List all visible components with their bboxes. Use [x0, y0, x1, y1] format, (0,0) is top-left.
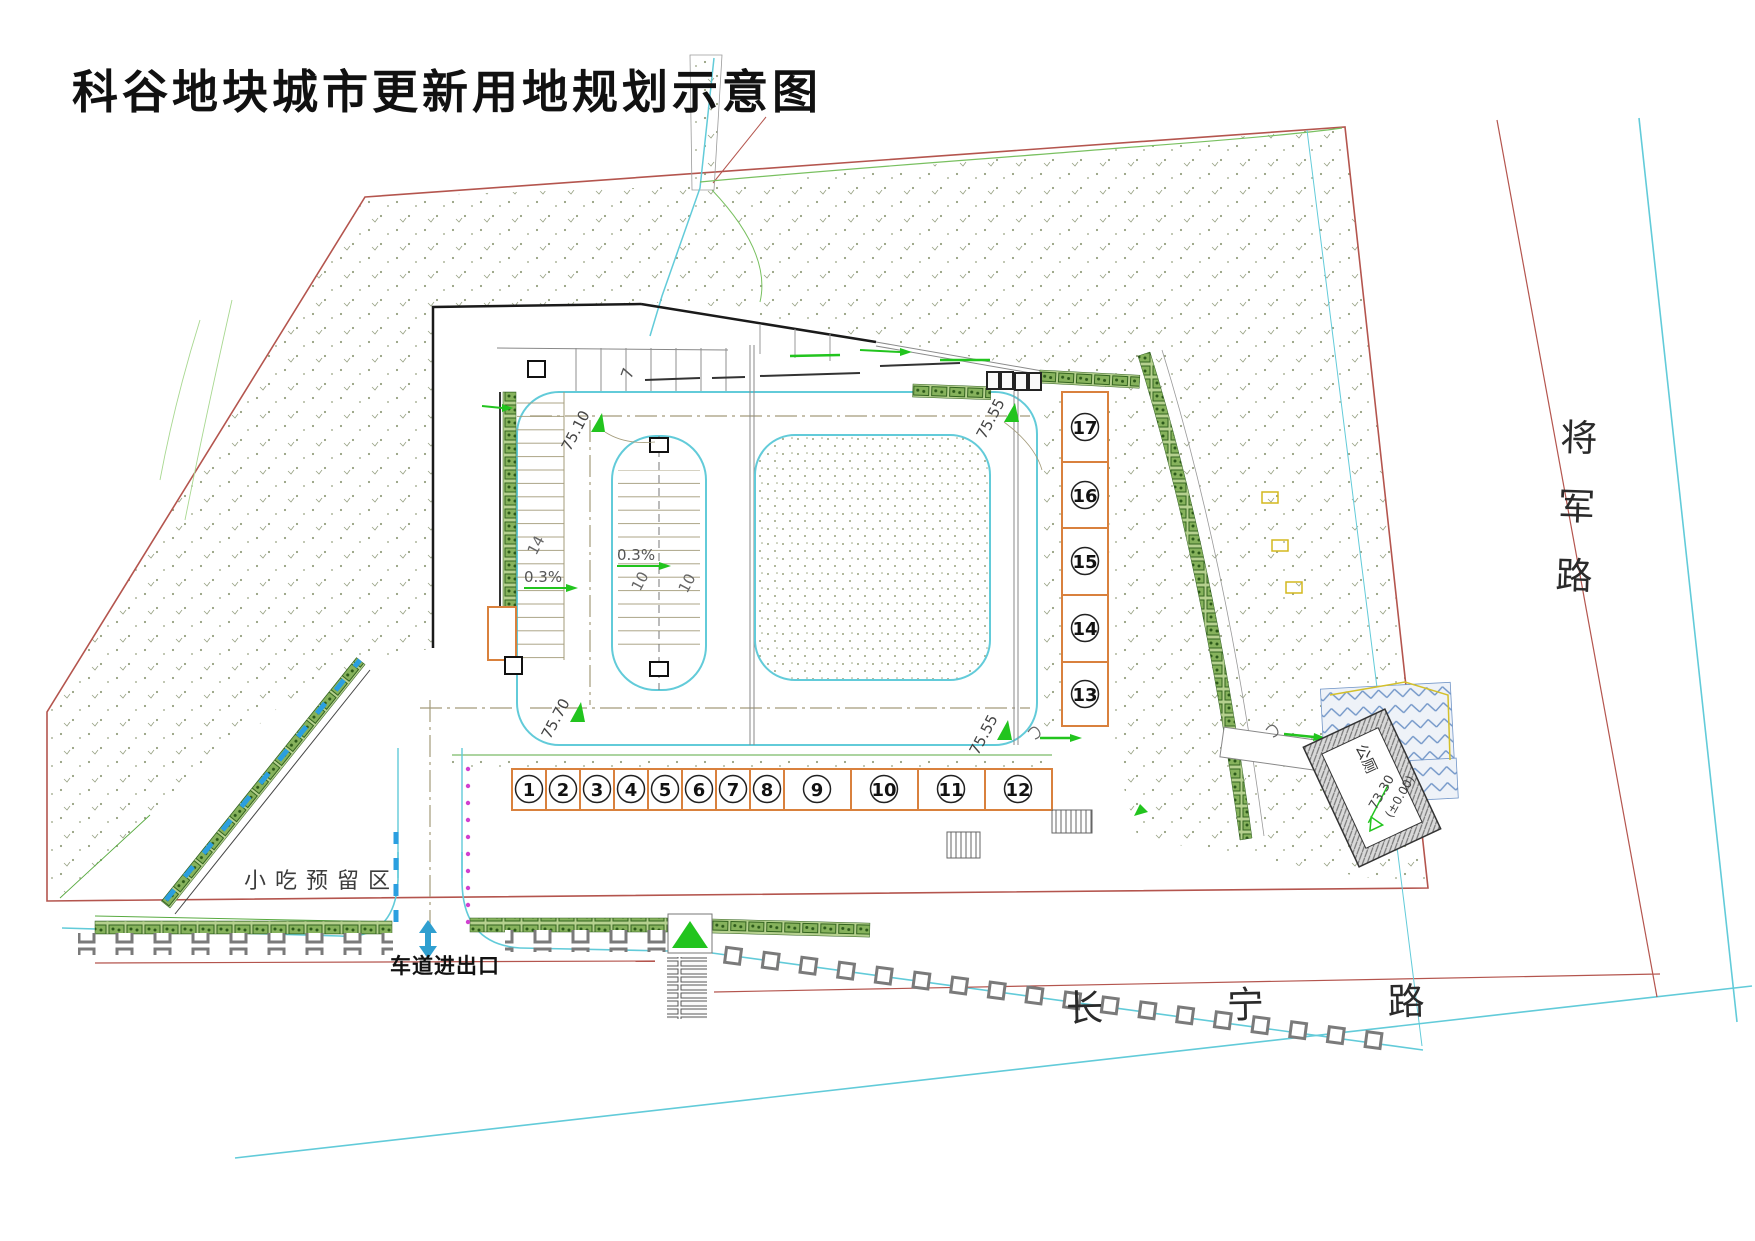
unit-number: 14: [1072, 619, 1097, 640]
road-label-changning: 长 宁 路: [1065, 970, 1481, 1033]
unit-number: 8: [761, 780, 774, 801]
snack-area-label: 小吃预留区: [244, 863, 399, 895]
elevation-bottom-left: 75.70: [538, 696, 574, 742]
unit-number: 12: [1005, 780, 1030, 801]
unit-number: 1: [523, 780, 536, 801]
slope-right: 0.3%: [617, 546, 655, 564]
road-label-jiangjun: 将军路: [1541, 417, 1602, 626]
unit-number: 4: [625, 780, 638, 801]
crosswalk: [667, 957, 707, 1019]
shop-units-row: 1 2 3 4 5 6 7 8 9 10 11 12: [512, 769, 1052, 810]
elevation-bottom-right: 75.55: [966, 712, 1002, 758]
slope-left: 0.3%: [524, 568, 562, 586]
west-parking-column: [488, 392, 564, 674]
unit-number: 9: [811, 780, 824, 801]
unit-number: 17: [1072, 418, 1097, 439]
page-title: 科谷地块城市更新用地规划示意图: [72, 56, 822, 122]
site-plan-drawing: 7: [0, 0, 1755, 1241]
unit-number: 13: [1072, 685, 1097, 706]
driveway-label: 车道进出口: [390, 950, 500, 980]
unit-number: 2: [557, 780, 570, 801]
unit-number: 15: [1072, 552, 1097, 573]
unit-number: 3: [591, 780, 604, 801]
unit-number: 7: [727, 780, 740, 801]
unit-number: 11: [938, 780, 963, 801]
site-plan-page: 7: [0, 0, 1755, 1241]
parked-cars: [987, 372, 1041, 390]
fence-dotted-line: [464, 758, 472, 934]
shop-units-column: 17 16 15 14 13: [1062, 392, 1108, 726]
unit-number: 10: [871, 780, 896, 801]
central-plaza: [755, 435, 990, 680]
elevation-top-right: 75.55: [973, 396, 1009, 442]
unit-number: 6: [693, 780, 706, 801]
unit-number: 16: [1072, 486, 1097, 507]
unit-number: 5: [659, 780, 672, 801]
